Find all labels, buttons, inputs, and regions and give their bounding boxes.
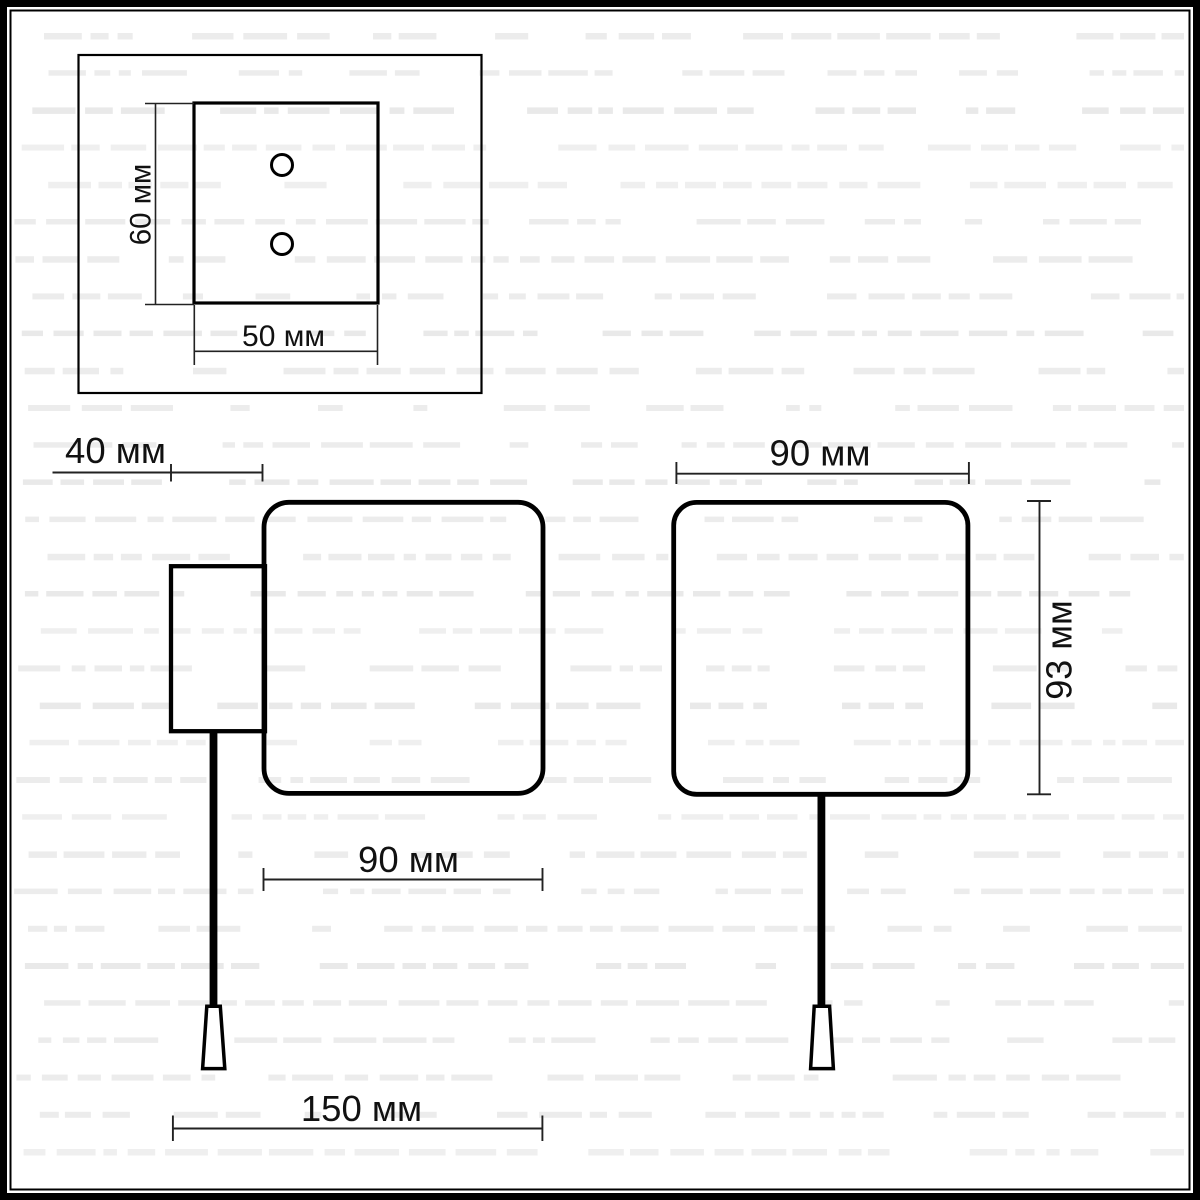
svg-text:40 мм: 40 мм [65, 430, 166, 471]
svg-text:93 мм: 93 мм [1039, 600, 1080, 700]
svg-text:60 мм: 60 мм [125, 164, 158, 246]
svg-text:90 мм: 90 мм [770, 433, 871, 474]
svg-text:90 мм: 90 мм [358, 839, 459, 880]
svg-text:150 мм: 150 мм [301, 1088, 422, 1129]
svg-text:50 мм: 50 мм [242, 320, 325, 353]
